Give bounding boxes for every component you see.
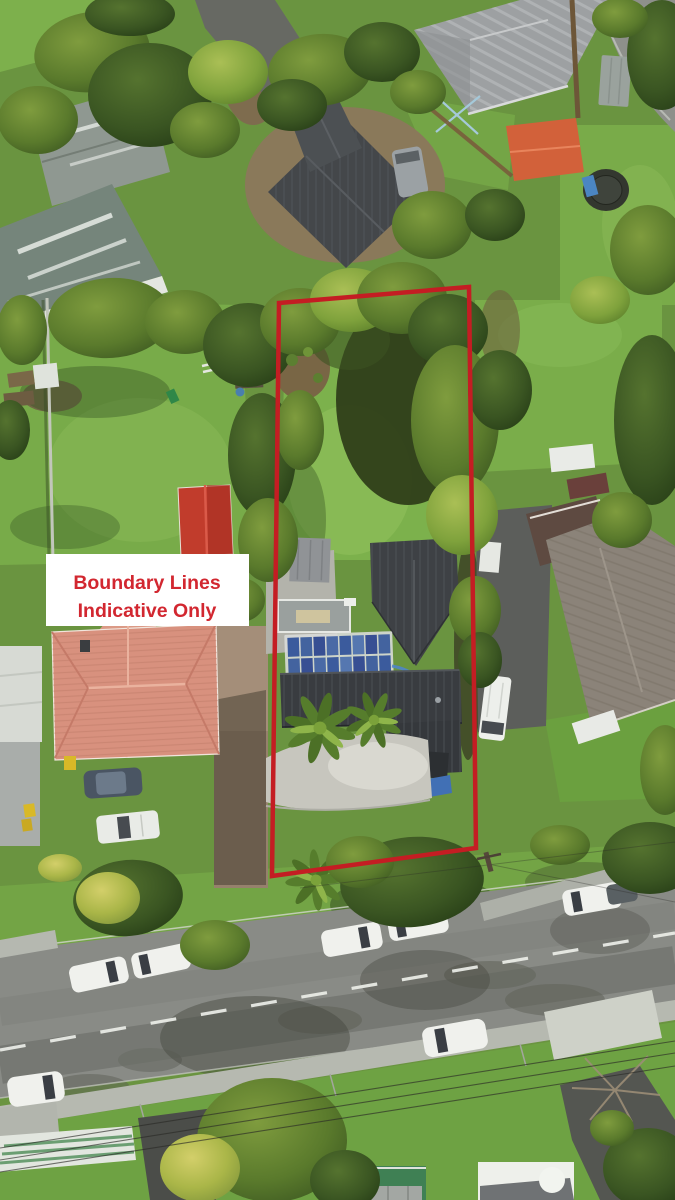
flat-roof-deck — [278, 598, 356, 632]
disclaimer-line1: Boundary Lines — [73, 572, 221, 594]
disclaimer-label: Boundary Lines Indicative Only — [46, 554, 249, 626]
wheelie-bin — [21, 818, 33, 831]
blue-barrel — [236, 388, 245, 397]
house-bottom-white — [478, 1162, 574, 1200]
caravan — [549, 444, 595, 472]
orange-roof-shed — [506, 118, 584, 181]
wheelie-bin — [64, 756, 76, 770]
red-roof-outbuilding — [178, 485, 233, 557]
wheelie-bin — [23, 803, 36, 817]
aerial-photo-canvas: Boundary Lines Indicative Only — [0, 0, 675, 1200]
aerial-photo: Boundary Lines Indicative Only — [0, 0, 675, 1200]
car-dark-lawn — [83, 767, 143, 799]
disclaimer-line2: Indicative Only — [78, 600, 217, 622]
white-shed — [33, 363, 59, 389]
grey-shed — [598, 55, 631, 107]
